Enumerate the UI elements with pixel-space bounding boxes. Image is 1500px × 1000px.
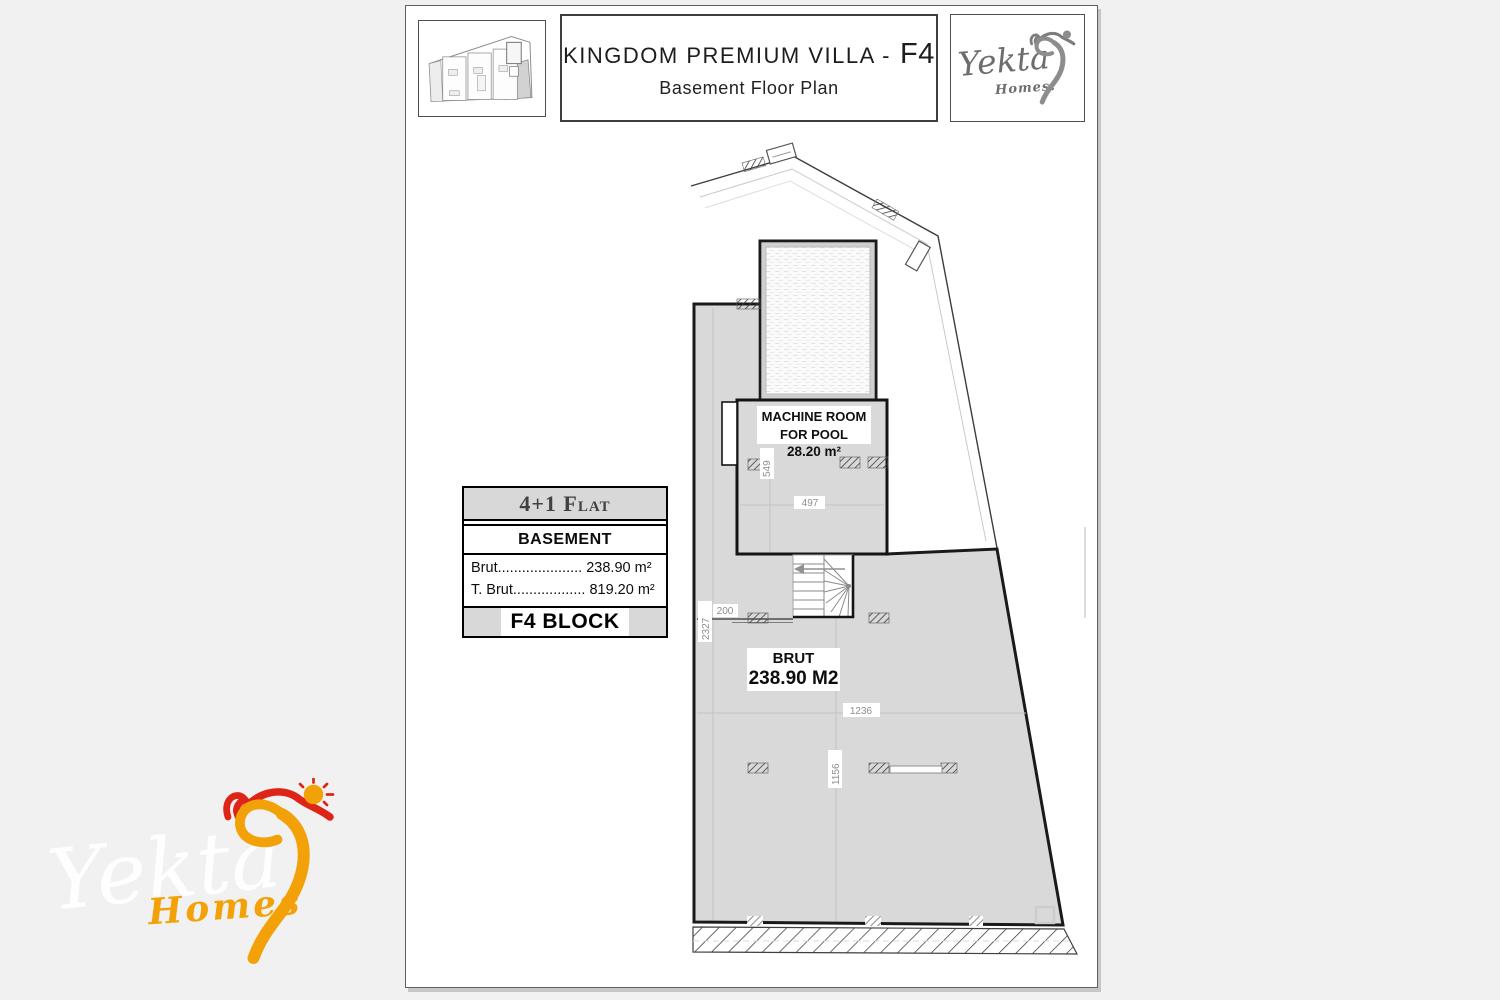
basement-footprint xyxy=(694,241,1063,925)
dim-497: 497 xyxy=(802,498,819,509)
brut-area-label: BRUT 238.90 M2 xyxy=(747,648,840,691)
pool xyxy=(760,241,876,400)
boundary-detail-rect2 xyxy=(906,241,931,271)
brut-caption: BRUT xyxy=(747,650,840,667)
brut-row: Brut..................... 238.90 m² xyxy=(471,558,659,580)
dim-549: 549 xyxy=(762,460,773,477)
tbrut-row-leader: .................. xyxy=(513,582,586,598)
floor-plan-document: Yekta Homes xyxy=(0,0,1500,1000)
floor-plan-drawing: 549 497 2327 200 1236 1156 xyxy=(0,0,1500,1000)
tbrut-row: T. Brut.................. 819.20 m² xyxy=(471,580,659,602)
area-values-cell: Brut..................... 238.90 m² T. B… xyxy=(464,555,666,606)
machine-room-line1: MACHINE ROOM xyxy=(757,408,871,426)
dim-2327: 2327 xyxy=(701,617,712,640)
machine-room-label: MACHINE ROOM FOR POOL xyxy=(757,406,871,444)
machine-room-line2: FOR POOL xyxy=(757,426,871,444)
flat-type-cell: 4+1 Flat xyxy=(464,488,666,521)
brut-value: 238.90 M2 xyxy=(747,668,840,690)
block-name-text: F4 BLOCK xyxy=(511,610,620,634)
dim-1156: 1156 xyxy=(831,763,842,785)
brut-row-value: 238.90 m² xyxy=(582,560,651,576)
beam-detail xyxy=(890,766,942,773)
tbrut-row-label: T. Brut xyxy=(471,582,513,598)
boundary-detail-rect xyxy=(766,143,796,164)
brut-row-leader: ..................... xyxy=(498,560,583,576)
dim-1236: 1236 xyxy=(850,706,873,717)
brut-row-label: Brut xyxy=(471,560,498,576)
tbrut-row-value: 819.20 m² xyxy=(585,582,654,598)
wall-notch xyxy=(722,402,737,465)
dim-200: 200 xyxy=(717,606,734,617)
block-name-cell: F4 BLOCK xyxy=(464,606,666,636)
staircase xyxy=(793,555,853,617)
unit-info-table: 4+1 Flat BASEMENT Brut..................… xyxy=(462,486,668,638)
retaining-wall-hatch xyxy=(693,927,1077,954)
floor-name-cell: BASEMENT xyxy=(464,524,666,555)
machine-room-area: 28.20 m² xyxy=(757,444,871,459)
